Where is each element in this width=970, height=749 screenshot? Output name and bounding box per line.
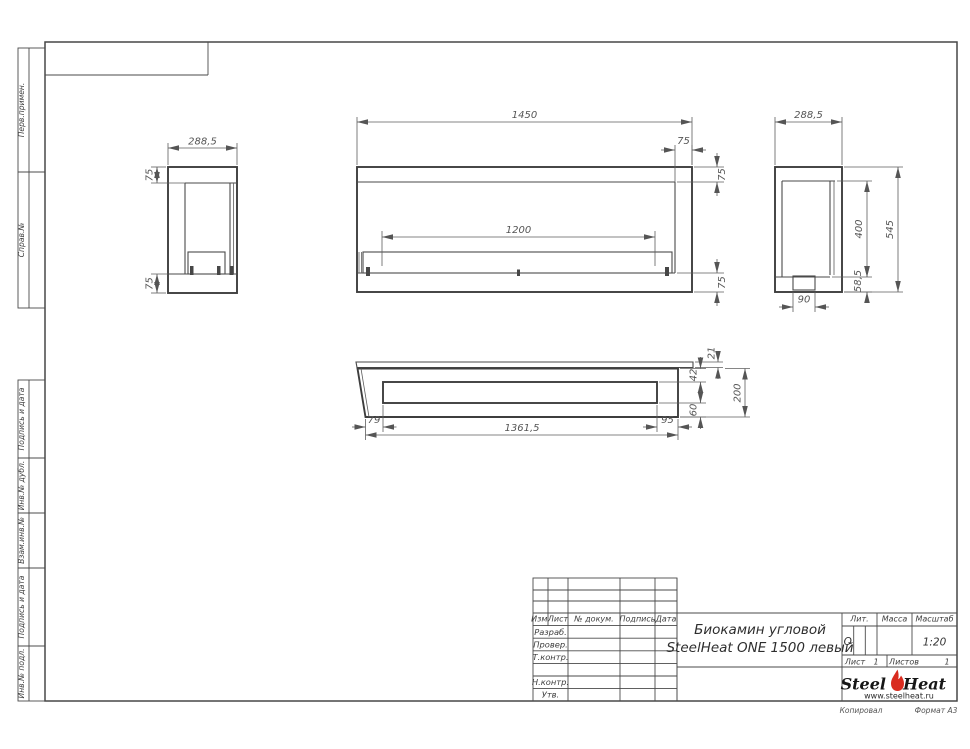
dim-left-width: 288,5 xyxy=(168,137,237,166)
dim-text: 545 xyxy=(885,220,896,239)
title-block: Изм. Лист № докум. Подпись Дата Разраб. … xyxy=(531,578,957,701)
drawing-canvas: Перв.примен. Справ.№ Подпись и дата Инв.… xyxy=(0,0,970,749)
dim-front-burner-length: 1200 xyxy=(382,225,655,266)
lit-label: Лит. xyxy=(849,615,868,624)
dim-front-bottom-inset: 75 xyxy=(677,259,728,306)
dim-text: 1200 xyxy=(506,225,531,236)
col-list-label: Лист xyxy=(547,615,569,624)
dim-text: 75 xyxy=(717,168,728,181)
top-view-outline xyxy=(358,369,679,418)
dim-text: 288,5 xyxy=(188,137,217,148)
sheet-value: 1 xyxy=(873,658,878,667)
sidebar-label: Подпись и дата xyxy=(17,575,26,638)
row-utv-label: Утв. xyxy=(542,690,559,700)
dim-text: 400 xyxy=(854,219,865,238)
sidebar-cell-sprav-no: Справ.№ xyxy=(17,172,45,308)
doc-title-line2: SteelHeat ONE 1500 левый xyxy=(666,640,853,656)
dim-text: 75 xyxy=(717,276,728,289)
row-tkontr-label: Т.контр. xyxy=(533,652,569,662)
row-prover-label: Провер. xyxy=(533,640,567,650)
sheet-label: Лист xyxy=(844,658,866,667)
sidebar-label: Справ.№ xyxy=(17,223,26,258)
dim-text: 1450 xyxy=(512,110,537,121)
dim-text: 79 xyxy=(368,415,381,426)
row-razrab-label: Разраб. xyxy=(534,627,567,637)
col-sign-label: Подпись xyxy=(620,615,656,624)
dim-right-base-height: 58,5 xyxy=(832,269,872,300)
dim-text: 90 xyxy=(798,295,811,306)
top-left-stamp xyxy=(45,42,208,75)
sidebar-cell-inv-podl: Инв.№ подл. xyxy=(17,646,45,701)
dim-text: 200 xyxy=(733,383,744,402)
sheets-value: 1 xyxy=(944,658,949,667)
right-view-outline xyxy=(775,167,842,292)
view-front: 1450 1200 75 75 xyxy=(357,110,728,306)
scale-label: Масштаб xyxy=(915,615,953,624)
dim-top-body-length: 1361,5 xyxy=(366,419,679,440)
format-label: Формат А3 xyxy=(915,706,958,715)
dim-left-bottom-offset: 75 xyxy=(145,274,169,293)
lit-value: О xyxy=(844,636,852,648)
logo-url: www.steelheat.ru xyxy=(864,692,934,701)
dim-right-depth: 288,5 xyxy=(775,110,842,165)
col-doc-label: № докум. xyxy=(573,615,613,624)
drawing-sheet: Перв.примен. Справ.№ Подпись и дата Инв.… xyxy=(0,0,970,749)
sheets-label: Листов xyxy=(888,658,919,667)
frame-sidebar: Перв.примен. Справ.№ Подпись и дата Инв.… xyxy=(17,48,45,701)
sidebar-label: Подпись и дата xyxy=(17,387,26,450)
sidebar-cell-inv-dubl: Инв.№ дубл. xyxy=(17,458,45,513)
scale-value: 1:20 xyxy=(923,637,947,649)
row-nkontr-label: Н.контр. xyxy=(532,677,569,687)
dim-front-width: 1450 xyxy=(357,110,692,165)
dim-text: 1361,5 xyxy=(505,423,540,434)
drawing-frame xyxy=(45,42,957,701)
dim-top-right-offset: 95 xyxy=(643,405,692,432)
dim-text: 60 xyxy=(689,404,700,417)
dim-text: 21 xyxy=(707,347,718,360)
sidebar-label: Инв.№ дубл. xyxy=(17,461,26,511)
copied-label: Копировал xyxy=(840,706,883,715)
view-right-side: 288,5 400 58,5 545 90 xyxy=(775,110,903,312)
sidebar-label: Перв.примен. xyxy=(17,83,26,138)
right-view-burner xyxy=(793,276,815,290)
footer-notes: Копировал Формат А3 xyxy=(840,706,958,715)
sidebar-label: Инв.№ подл. xyxy=(17,649,26,699)
sidebar-cell-vzam-inv: Взам.инв.№ xyxy=(17,513,45,568)
dim-text: 58,5 xyxy=(853,270,864,292)
dim-right-burner-width: 90 xyxy=(779,292,829,312)
dim-text: 95 xyxy=(661,415,674,426)
dim-text: 75 xyxy=(145,277,156,290)
top-view-slot xyxy=(383,382,657,403)
dim-text: 42 xyxy=(689,369,700,382)
sidebar-cell-podpis-data-2: Подпись и дата xyxy=(17,568,45,646)
dim-text: 288,5 xyxy=(794,110,823,121)
sidebar-label: Взам.инв.№ xyxy=(17,517,26,564)
dim-text: 75 xyxy=(145,169,156,182)
dim-front-corner-inset: 75 xyxy=(661,136,706,182)
sidebar-cell-podpis-data-1: Подпись и дата xyxy=(17,380,45,458)
dim-front-top-inset: 75 xyxy=(677,153,728,196)
massa-label: Масса xyxy=(882,615,908,624)
dim-left-top-offset: 75 xyxy=(145,167,186,183)
doc-title-line1: Биокамин угловой xyxy=(694,622,826,638)
view-top: 21 42 60 200 xyxy=(352,347,750,440)
steelheat-logo: Steel Heat www.steelheat.ru xyxy=(841,670,947,701)
col-date-label: Дата xyxy=(655,615,677,624)
sidebar-cell-perv-primen: Перв.примен. xyxy=(17,48,45,172)
dim-text: 75 xyxy=(677,136,690,147)
view-left-side: 288,5 75 75 xyxy=(145,137,238,294)
top-view-back-lip xyxy=(356,362,693,368)
